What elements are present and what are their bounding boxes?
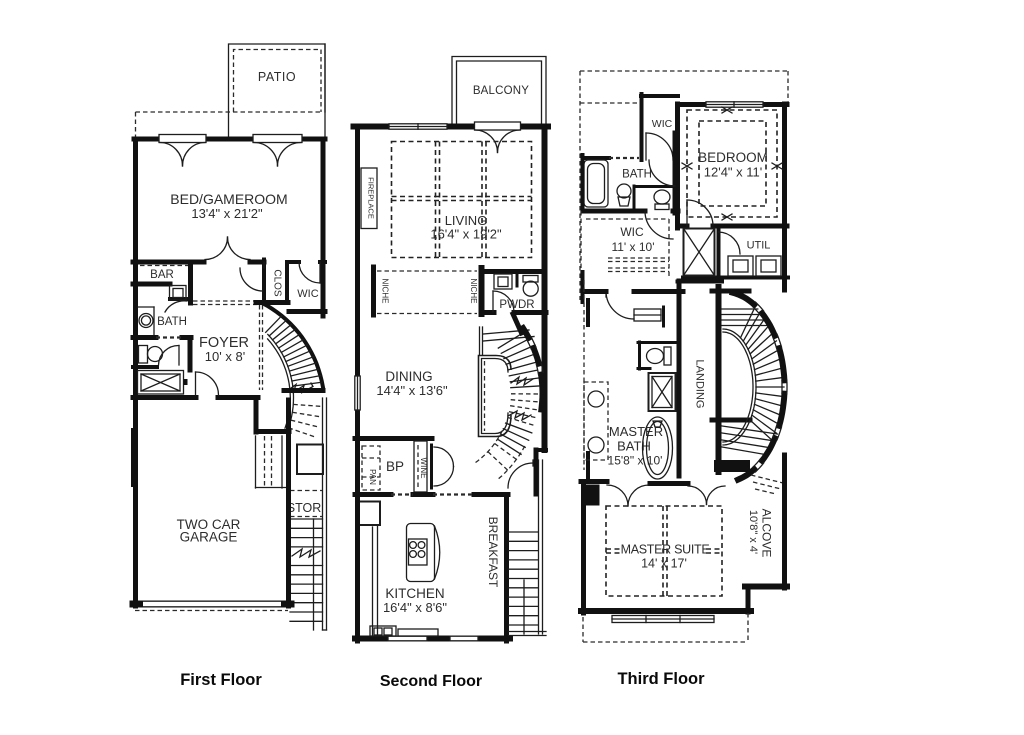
svg-text:BREAKFAST: BREAKFAST (486, 517, 500, 588)
svg-text:PAN: PAN (368, 469, 377, 485)
svg-text:NICHE: NICHE (469, 279, 478, 304)
svg-text:WIC: WIC (297, 288, 318, 300)
svg-text:CLOS: CLOS (272, 269, 283, 297)
svg-text:UTIL: UTIL (747, 240, 771, 252)
svg-text:BATH: BATH (622, 169, 652, 181)
svg-text:10' x 8': 10' x 8' (205, 349, 245, 364)
svg-text:LANDING: LANDING (694, 360, 706, 409)
svg-text:BP: BP (386, 459, 404, 474)
svg-text:Second Floor: Second Floor (380, 673, 482, 690)
svg-text:PWDR: PWDR (499, 299, 534, 311)
svg-text:WINE: WINE (419, 458, 428, 479)
svg-text:STOR: STOR (287, 501, 322, 515)
svg-text:10'8" x 4': 10'8" x 4' (747, 510, 759, 554)
svg-text:ALCOVE: ALCOVE (760, 509, 774, 558)
svg-text:MASTER SUITE: MASTER SUITE (621, 543, 710, 557)
svg-text:14'4" x 13'6": 14'4" x 13'6" (376, 383, 448, 398)
svg-text:NICHE: NICHE (381, 279, 390, 304)
svg-text:12'4" x 11': 12'4" x 11' (704, 165, 763, 180)
svg-text:BED/GAMEROOM: BED/GAMEROOM (170, 191, 287, 207)
svg-text:WIC: WIC (652, 118, 673, 130)
svg-text:WIC: WIC (620, 225, 644, 239)
svg-text:14' x 17': 14' x 17' (641, 557, 687, 571)
svg-text:11' x 10': 11' x 10' (611, 240, 654, 254)
svg-text:16'4" x 19'2": 16'4" x 19'2" (430, 227, 502, 242)
svg-text:DINING: DINING (385, 369, 432, 384)
svg-text:First Floor: First Floor (180, 671, 262, 689)
svg-text:PATIO: PATIO (258, 70, 296, 84)
svg-text:16'4" x 8'6": 16'4" x 8'6" (383, 600, 447, 615)
svg-text:FIREPLACE: FIREPLACE (367, 177, 376, 219)
svg-text:13'4" x 21'2": 13'4" x 21'2" (191, 206, 263, 221)
svg-text:15'8" x 10': 15'8" x 10' (608, 454, 663, 468)
svg-text:GARAGE: GARAGE (180, 530, 238, 545)
svg-text:BEDROOM: BEDROOM (698, 150, 768, 165)
svg-text:BATH: BATH (157, 316, 187, 328)
svg-text:BATH: BATH (617, 439, 651, 454)
svg-text:Third Floor: Third Floor (617, 670, 705, 688)
svg-text:BAR: BAR (150, 269, 174, 281)
svg-text:KITCHEN: KITCHEN (385, 586, 444, 601)
svg-text:BALCONY: BALCONY (473, 85, 529, 97)
